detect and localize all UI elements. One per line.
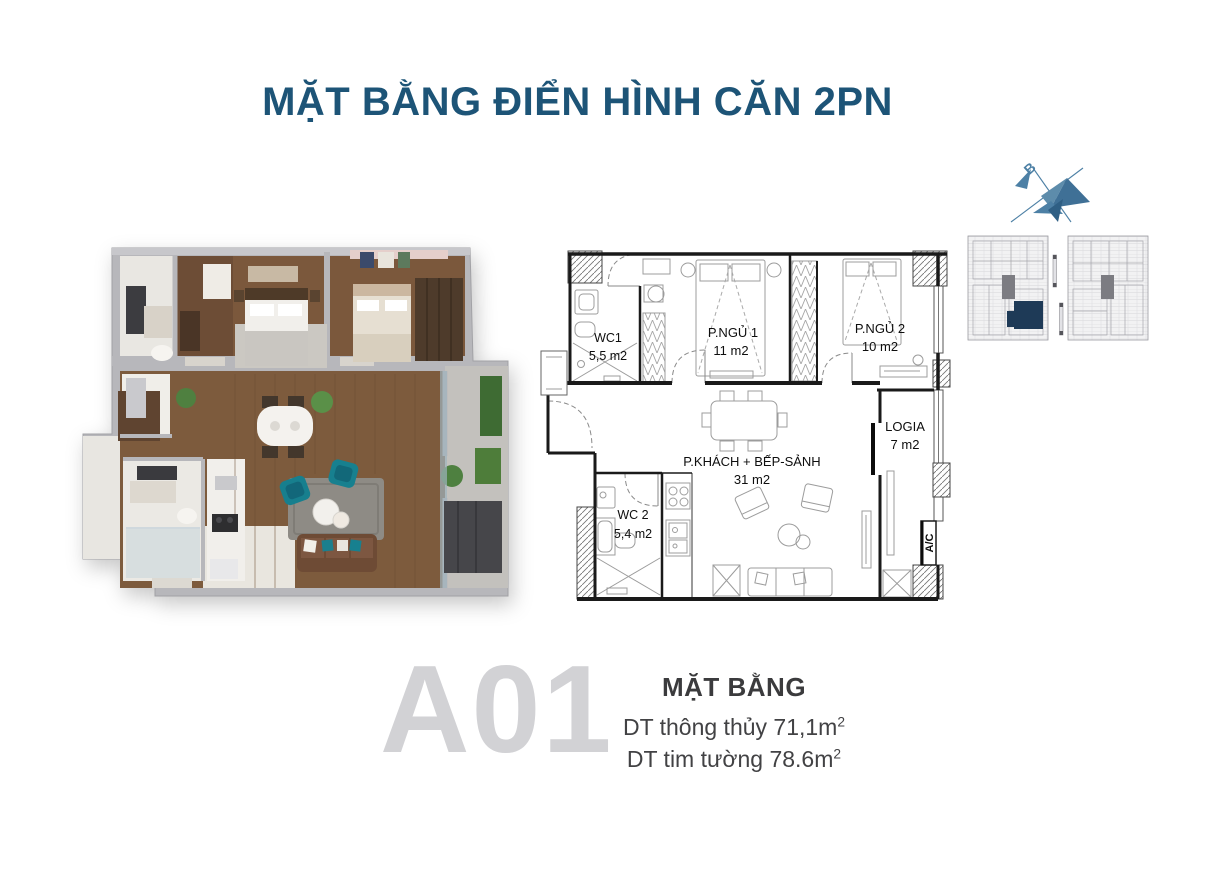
- compass-kite: [1033, 178, 1090, 222]
- gross-area-line: DT tim tường 78.6m2: [594, 743, 874, 775]
- apartment-3d-svg: [60, 226, 542, 620]
- net-area-sup: 2: [837, 714, 845, 729]
- apartment-3d-render: [60, 226, 542, 620]
- keyplan-tower-left: [968, 236, 1048, 340]
- site-keyplan-svg: [963, 233, 1153, 345]
- 3d-kitchen-appliance: [126, 378, 146, 418]
- unit-info-block: MẶT BẰNG DT thông thủy 71,1m2 DT tim tườ…: [594, 672, 874, 775]
- room-label: WC 2: [617, 508, 648, 522]
- ac-label: A/C: [924, 533, 936, 552]
- 3d-entry-door: [152, 578, 192, 588]
- room-area: 5,5 m2: [589, 349, 627, 363]
- keyplan-unit-highlight: [1014, 301, 1043, 329]
- compass-north-icon: B: [1003, 156, 1093, 234]
- north-label: B: [1021, 159, 1039, 178]
- floor-plan-svg: A/C WC1 5,5 m2 P.NGỦ 1 11 m2 P.NGỦ 2 10 …: [540, 243, 960, 615]
- keyplan-core-left: [1002, 275, 1015, 299]
- brochure-page: MẶT BẰNG ĐIỂN HÌNH CĂN 2PN: [0, 0, 1215, 887]
- keyplan-unit-highlight-notch: [1007, 311, 1014, 327]
- room-area: 31 m2: [734, 472, 770, 487]
- room-area: 10 m2: [862, 339, 898, 354]
- net-area-text: DT thông thủy 71,1m: [623, 714, 837, 740]
- room-label: WC1: [594, 331, 622, 345]
- room-area: 7 m2: [891, 437, 920, 452]
- unit-info-title: MẶT BẰNG: [594, 672, 874, 703]
- room-area: 5,4 m2: [614, 527, 652, 541]
- gross-area-sup: 2: [833, 747, 841, 762]
- room-label: LOGIA: [885, 419, 925, 434]
- page-title: MẶT BẰNG ĐIỂN HÌNH CĂN 2PN: [0, 80, 1155, 125]
- net-area-line: DT thông thủy 71,1m2: [594, 711, 874, 743]
- plan-sliding-door: [871, 423, 875, 475]
- room-label: P.NGỦ 2: [855, 321, 905, 336]
- plan-ac-box: A/C: [921, 521, 936, 565]
- compass-svg: B: [1003, 156, 1093, 234]
- gross-area-text: DT tim tường 78.6m: [627, 746, 833, 772]
- room-area: 11 m2: [713, 343, 748, 358]
- keyplan-core-right: [1101, 275, 1114, 299]
- keyplan-scalebars: [1053, 255, 1063, 335]
- room-label: P.KHÁCH + BẾP-SẢNH: [683, 454, 820, 469]
- 3d-sofa: [297, 534, 377, 572]
- 3d-door-bed1: [185, 357, 225, 366]
- keyplan-tower-right: [1068, 236, 1148, 340]
- room-label: P.NGỦ 1: [708, 325, 758, 340]
- floor-plan-2d: A/C WC1 5,5 m2 P.NGỦ 1 11 m2 P.NGỦ 2 10 …: [540, 243, 960, 615]
- plan-ledge: [541, 351, 567, 395]
- site-keyplan: [963, 233, 1153, 345]
- unit-code: A01: [380, 648, 613, 772]
